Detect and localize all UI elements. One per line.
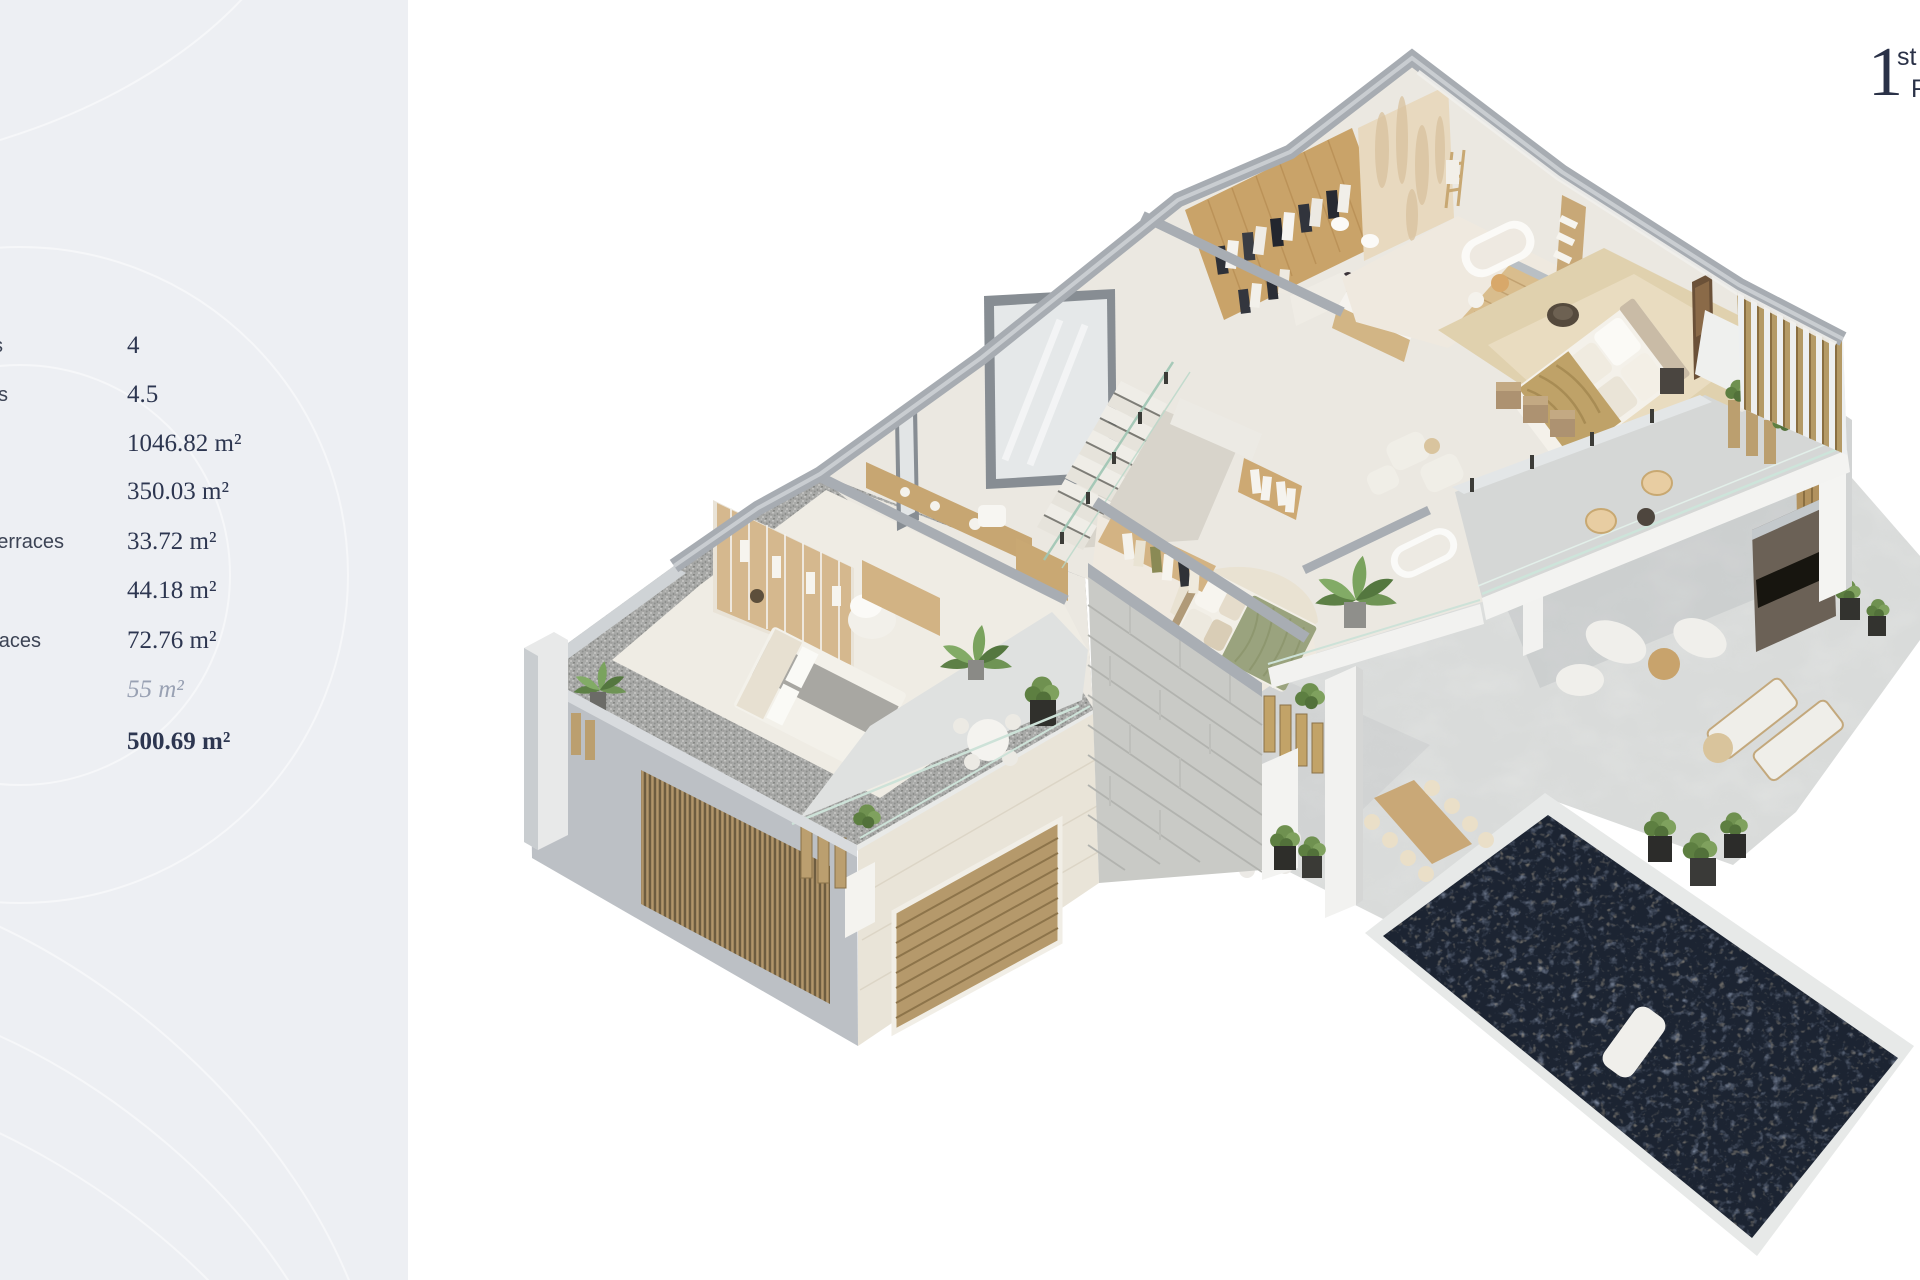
- svg-text:Covered terraces: Covered terraces: [0, 531, 64, 553]
- svg-text:44.18 m²: 44.18 m²: [127, 577, 216, 604]
- svg-text:Floor: Floor: [1911, 75, 1920, 103]
- svg-text:500.69 m²: 500.69 m²: [127, 728, 230, 755]
- svg-text:4: 4: [127, 332, 140, 359]
- svg-text:1046.82 m²: 1046.82 m²: [127, 430, 241, 457]
- svg-text:33.72 m²: 33.72 m²: [127, 528, 216, 555]
- svg-text:Open terraces: Open terraces: [0, 630, 41, 652]
- svg-text:55 m²: 55 m²: [127, 676, 184, 703]
- svg-text:Bedrooms: Bedrooms: [0, 335, 3, 357]
- svg-text:72.76 m²: 72.76 m²: [127, 627, 216, 654]
- svg-text:4.5: 4.5: [127, 381, 158, 408]
- svg-text:350.03 m²: 350.03 m²: [127, 478, 229, 505]
- svg-text:st: st: [1897, 43, 1917, 71]
- svg-text:Bathrooms: Bathrooms: [0, 384, 8, 406]
